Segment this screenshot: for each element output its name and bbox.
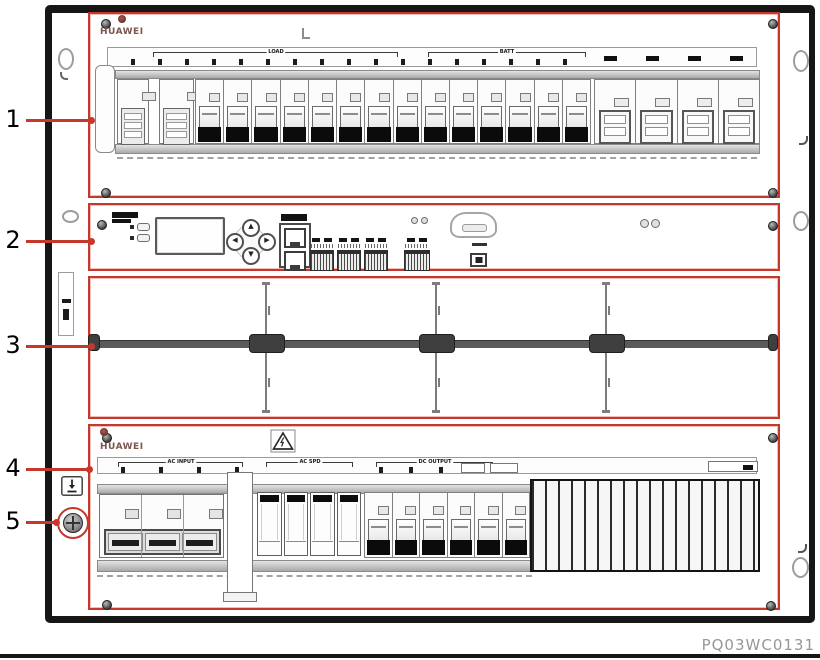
i xyxy=(645,127,667,136)
breaker-clip xyxy=(405,506,416,515)
breaker-clip xyxy=(407,93,418,102)
callout-line-5 xyxy=(26,521,57,524)
terminal-connector xyxy=(404,250,430,271)
dc-right-breaker-group xyxy=(594,79,760,144)
rocker-cell xyxy=(182,533,217,551)
label-bar xyxy=(63,309,69,320)
breaker-clip xyxy=(520,93,531,102)
rail-connector xyxy=(419,334,455,353)
battery-breaker-large xyxy=(159,79,194,144)
dc-label-strip: LOAD BATT xyxy=(107,47,757,67)
busbar-cover xyxy=(530,479,760,572)
battery-bracket-label: BATT xyxy=(498,49,516,55)
status-led xyxy=(130,234,150,242)
i xyxy=(687,115,709,124)
indicator-dot xyxy=(651,219,660,228)
din-rail-bottom xyxy=(115,144,760,154)
smu-silkscreen xyxy=(112,219,131,223)
rocker-cell xyxy=(145,533,180,551)
rectifier-bay xyxy=(88,276,780,419)
breaker-clip xyxy=(167,509,181,519)
terminal-labels xyxy=(337,238,361,242)
terminal-connector xyxy=(310,250,334,271)
tl xyxy=(339,238,347,242)
ac-breaker-band xyxy=(97,484,532,578)
breaker-clip xyxy=(548,93,559,102)
terminal-pins xyxy=(311,244,333,248)
breaker-label xyxy=(452,127,475,142)
tick-mark xyxy=(320,59,324,65)
panel-screw xyxy=(768,433,778,443)
mounting-hole xyxy=(793,50,809,72)
slot-divider-jog xyxy=(608,306,610,315)
breaker-small xyxy=(450,79,478,144)
breaker-label xyxy=(508,127,531,142)
breaker-rocker xyxy=(723,110,755,144)
ac-spd-group xyxy=(257,492,361,556)
panel-screw xyxy=(768,188,778,198)
callout-number-5: 5 xyxy=(2,507,24,535)
ac-distribution-panel: HUAWEI AC INPUT AC SPD DC OUTPUT xyxy=(88,424,780,610)
i xyxy=(728,115,750,124)
rail-connector xyxy=(589,334,625,353)
aux-screw xyxy=(411,217,418,224)
breaker-small xyxy=(448,492,476,558)
serial-label xyxy=(58,272,74,336)
spd-label xyxy=(340,495,359,502)
mounting-hole xyxy=(793,211,809,231)
terminal-connector xyxy=(337,250,361,271)
din-rail-bottom xyxy=(97,560,532,572)
smu-lan-stack xyxy=(279,223,311,268)
tick-mark xyxy=(374,59,378,65)
ground-symbol-icon xyxy=(61,476,83,496)
breaker-small xyxy=(422,79,450,144)
din-rail-top xyxy=(115,70,760,79)
partition-panel xyxy=(227,472,253,598)
callout-line-1 xyxy=(26,119,92,122)
brand-wordmark: HUAWEI xyxy=(100,442,144,452)
breaker-small xyxy=(420,492,448,558)
i xyxy=(604,115,626,124)
rectifier-slot-layer xyxy=(90,278,778,417)
breaker-label xyxy=(198,127,221,142)
breaker-label xyxy=(311,127,334,142)
dot xyxy=(130,225,134,229)
tick-mark xyxy=(439,467,443,473)
tl xyxy=(351,238,359,242)
callout-number-2: 2 xyxy=(2,226,24,254)
breaker-label xyxy=(477,540,500,555)
breaker-small xyxy=(503,492,531,558)
slot-divider-jog xyxy=(438,306,440,315)
ac-rocker-cells xyxy=(104,529,221,555)
keypad-button: ◀ xyxy=(226,233,244,251)
terminal-pins xyxy=(405,244,429,248)
panel-handle xyxy=(450,212,497,238)
tick-mark xyxy=(482,59,486,65)
breaker-small xyxy=(563,79,591,144)
strip-label-bar xyxy=(688,56,701,61)
ac-spd-bracket: AC SPD xyxy=(266,462,353,467)
breaker-small xyxy=(365,79,393,144)
breaker-small xyxy=(535,79,563,144)
panel-screw xyxy=(102,600,112,610)
filler-panel xyxy=(95,65,115,153)
panel-screw xyxy=(101,188,111,198)
breaker-rocker xyxy=(121,108,145,145)
pole-line xyxy=(183,495,184,557)
handle-slot xyxy=(472,243,487,246)
breaker-large xyxy=(595,79,636,144)
page-rule xyxy=(0,654,820,658)
breaker-small xyxy=(393,492,421,558)
status-led xyxy=(130,223,150,231)
terminal-group xyxy=(310,238,334,271)
panel-screw xyxy=(766,601,776,611)
tick-mark xyxy=(536,59,540,65)
dc-distribution-panel: HUAWEI LOAD BATT xyxy=(88,12,780,198)
breaker-label xyxy=(367,540,390,555)
ac-label-strip: AC INPUT AC SPD DC OUTPUT xyxy=(97,457,757,474)
i xyxy=(645,115,667,124)
mounting-hole xyxy=(58,48,74,70)
breaker-small xyxy=(475,492,503,558)
tl xyxy=(324,238,332,242)
breaker-clip xyxy=(350,93,361,102)
terminal-labels xyxy=(404,238,430,242)
tick-box xyxy=(490,463,518,473)
tl xyxy=(366,238,374,242)
callout-number-3: 3 xyxy=(2,331,24,359)
breaker-large xyxy=(678,79,719,144)
breaker-rocker xyxy=(599,110,631,144)
i xyxy=(604,127,626,136)
breaker-label xyxy=(226,127,249,142)
tick-mark xyxy=(159,467,163,473)
usb-port xyxy=(470,253,487,267)
terminal-group xyxy=(364,238,388,271)
mounting-hole xyxy=(792,557,809,578)
breaker-small xyxy=(337,79,365,144)
surge-protector xyxy=(284,492,309,556)
i xyxy=(124,131,142,138)
terminal-group xyxy=(337,238,361,271)
tick-mark xyxy=(563,59,567,65)
callout-number-4: 4 xyxy=(2,454,24,482)
breaker-small xyxy=(281,79,309,144)
tick-mark xyxy=(266,59,270,65)
callout-line-2 xyxy=(26,240,92,243)
terminal-pins xyxy=(338,244,360,248)
dc-small-breaker-group xyxy=(195,79,591,144)
panel-mark xyxy=(302,28,310,39)
ac-ticks-right xyxy=(379,467,473,473)
legend-dash xyxy=(743,465,753,470)
panel-screw xyxy=(768,19,778,29)
breaker-clip xyxy=(322,93,333,102)
breaker-label xyxy=(395,540,418,555)
brand-logo-icon xyxy=(100,428,108,436)
breaker-label xyxy=(339,127,362,142)
battery-bracket: BATT xyxy=(428,52,586,57)
breaker-label xyxy=(396,127,419,142)
breaker-rocker xyxy=(163,108,190,145)
load-bracket: LOAD xyxy=(153,52,398,57)
callout-line-3 xyxy=(26,345,92,348)
ac-spd-label: AC SPD xyxy=(297,459,322,465)
tick-mark xyxy=(212,59,216,65)
breaker-clip xyxy=(576,93,587,102)
breaker-clip xyxy=(655,98,670,107)
brand-wordmark: HUAWEI xyxy=(100,27,144,37)
breaker-label xyxy=(367,127,390,142)
strip-label-bar xyxy=(646,56,659,61)
slot-divider-jog xyxy=(608,378,610,387)
dc-strip-ticks xyxy=(131,59,567,65)
tick-mark xyxy=(131,59,135,65)
figure-canvas: HUAWEI LOAD BATT xyxy=(0,0,820,660)
pill xyxy=(137,234,150,242)
tick-box xyxy=(461,463,485,473)
strip-label-bar xyxy=(604,56,617,61)
breaker-label xyxy=(283,127,306,142)
lcd-display xyxy=(155,217,225,255)
indicator-dot xyxy=(640,219,649,228)
i xyxy=(166,131,187,138)
tick-mark xyxy=(428,59,432,65)
panel-screw xyxy=(768,221,778,231)
breaker-label xyxy=(254,127,277,142)
breaker-clip xyxy=(125,509,139,519)
i xyxy=(728,127,750,136)
strip-legend-box xyxy=(708,461,758,472)
i xyxy=(687,127,709,136)
dc-strip-right-labels xyxy=(604,56,743,61)
lan-silkscreen xyxy=(281,214,307,221)
breaker-clip xyxy=(237,93,248,102)
ground-screw xyxy=(63,513,83,533)
keypad-button: ▼ xyxy=(242,247,260,265)
keypad-button: ▲ xyxy=(242,219,260,237)
surge-protector xyxy=(310,492,335,556)
breaker-clip xyxy=(697,98,712,107)
tl xyxy=(419,238,427,242)
breaker-label xyxy=(422,540,445,555)
breaker-large xyxy=(719,79,760,144)
breaker-small xyxy=(365,492,393,558)
tick-mark xyxy=(158,59,162,65)
warning-icon xyxy=(270,429,296,453)
monitoring-unit-panel: ▲◀▶▼ xyxy=(88,203,780,271)
terminal-pins xyxy=(365,244,387,248)
slot-divider-jog xyxy=(438,378,440,387)
breaker-clip xyxy=(738,98,753,107)
breaker-small xyxy=(252,79,280,144)
partition-foot xyxy=(223,592,257,602)
smu-keypad: ▲◀▶▼ xyxy=(220,213,280,269)
breaker-large xyxy=(636,79,677,144)
breaker-clip xyxy=(491,93,502,102)
brand-logo-icon xyxy=(118,15,126,23)
breaker-small xyxy=(196,79,224,144)
strip-tick-boxes xyxy=(461,463,518,473)
aux-screw xyxy=(421,217,428,224)
breaker-clip xyxy=(266,93,277,102)
breaker-small xyxy=(224,79,252,144)
callout-line-4 xyxy=(26,468,90,471)
smu-terminal-row xyxy=(310,238,388,271)
breaker-small xyxy=(506,79,534,144)
tick-mark xyxy=(401,59,405,65)
keypad-button: ▶ xyxy=(258,233,276,251)
ac-input-breaker xyxy=(99,494,224,558)
tick-mark xyxy=(185,59,189,65)
smu-led-column xyxy=(130,223,150,242)
breaker-clip xyxy=(460,506,471,515)
terminal-row xyxy=(117,157,757,159)
slot-divider-jog xyxy=(268,378,270,387)
tl xyxy=(378,238,386,242)
i xyxy=(124,113,142,120)
terminal-row xyxy=(97,575,532,577)
breaker-label xyxy=(565,127,588,142)
ac-dc-breaker-group xyxy=(364,492,530,558)
aux-terminal-block xyxy=(404,238,430,271)
terminal-labels xyxy=(364,238,388,242)
label-bar xyxy=(62,299,71,303)
tick-mark xyxy=(347,59,351,65)
tick-mark xyxy=(455,59,459,65)
load-bracket-label: LOAD xyxy=(266,49,285,55)
tick-mark xyxy=(197,467,201,473)
spd-label xyxy=(287,495,306,502)
pill xyxy=(137,223,150,231)
breaker-label xyxy=(450,540,473,555)
breaker-clip xyxy=(209,93,220,102)
terminal-labels xyxy=(310,238,334,242)
tick-mark xyxy=(121,467,125,473)
tl xyxy=(407,238,415,242)
callout-number-1: 1 xyxy=(2,105,24,133)
tl xyxy=(312,238,320,242)
rail-connector xyxy=(249,334,285,353)
breaker-clip xyxy=(142,92,156,101)
breaker-clip xyxy=(433,506,444,515)
panel-screw xyxy=(97,220,107,230)
breaker-clip xyxy=(378,506,389,515)
terminal-connector xyxy=(364,250,388,271)
dc-breaker-band xyxy=(115,70,760,160)
breaker-clip xyxy=(515,506,526,515)
breaker-label xyxy=(424,127,447,142)
surge-protector xyxy=(257,492,282,556)
rocker-cell xyxy=(108,533,143,551)
breaker-clip xyxy=(435,93,446,102)
mounting-hole xyxy=(62,210,79,223)
tick-mark xyxy=(239,59,243,65)
ac-input-label: AC INPUT xyxy=(165,459,195,465)
tick-mark xyxy=(409,467,413,473)
breaker-clip xyxy=(614,98,629,107)
spd-label xyxy=(313,495,332,502)
ac-ticks-left xyxy=(121,467,239,473)
battery-breaker-large xyxy=(117,79,149,144)
i xyxy=(166,113,187,120)
breaker-clip xyxy=(294,93,305,102)
handle-grip xyxy=(462,224,487,232)
lan-port xyxy=(284,251,306,271)
breaker-small xyxy=(394,79,422,144)
breaker-small xyxy=(309,79,337,144)
figure-code: PQ03WC0131 xyxy=(515,636,815,654)
dc-output-label: DC OUTPUT xyxy=(416,459,452,465)
smu-silkscreen xyxy=(112,212,138,218)
tick-mark xyxy=(293,59,297,65)
i xyxy=(124,122,142,129)
pole-line xyxy=(141,495,142,557)
breaker-label xyxy=(480,127,503,142)
slot-divider-jog xyxy=(268,306,270,315)
breaker-clip xyxy=(379,93,390,102)
surge-protector xyxy=(337,492,362,556)
breaker-label xyxy=(505,540,528,555)
tick-mark xyxy=(509,59,513,65)
strip-label-bar xyxy=(730,56,743,61)
breaker-label xyxy=(537,127,560,142)
i xyxy=(166,122,187,129)
breaker-rocker xyxy=(682,110,714,144)
dot xyxy=(130,236,134,240)
breaker-rocker xyxy=(640,110,672,144)
breaker-clip xyxy=(209,509,223,519)
spd-label xyxy=(260,495,279,502)
breaker-clip xyxy=(488,506,499,515)
breaker-clip xyxy=(463,93,474,102)
lan-port xyxy=(284,228,306,248)
breaker-small xyxy=(478,79,506,144)
tick-mark xyxy=(379,467,383,473)
